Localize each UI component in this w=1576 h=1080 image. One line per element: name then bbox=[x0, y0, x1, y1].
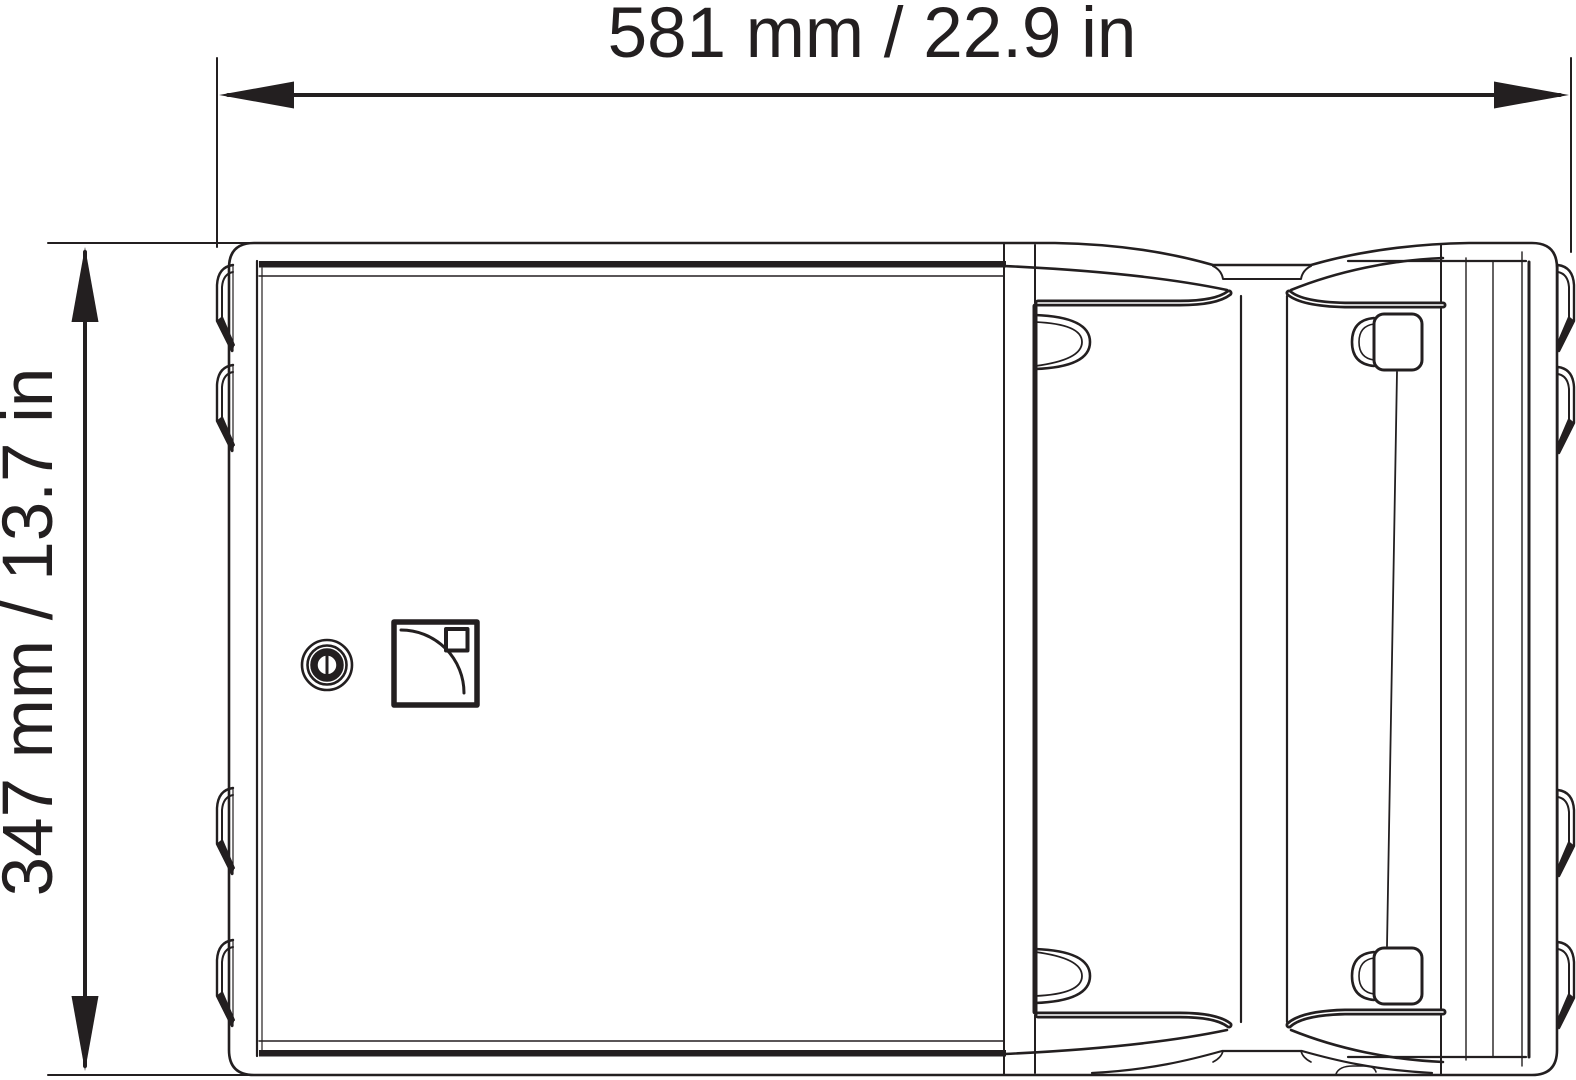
rigging-clips-left bbox=[217, 265, 234, 1026]
handle-grip-arc-inner bbox=[1359, 324, 1374, 360]
arrow-right-icon bbox=[1494, 82, 1569, 109]
right-panel-top-lip bbox=[1289, 293, 1443, 305]
front-panel-top-band bbox=[259, 261, 1006, 268]
back-panel-left bbox=[1035, 245, 1241, 1073]
width-dimension: 581 mm / 22.9 in bbox=[217, 0, 1571, 252]
screw-knob bbox=[302, 640, 352, 690]
handle-grip-icon bbox=[1374, 314, 1422, 370]
handle-grip-icon bbox=[1374, 948, 1422, 1004]
arrow-down-icon bbox=[72, 996, 99, 1071]
back-edge-slant-line bbox=[1387, 372, 1397, 946]
rigging-clip-icon bbox=[1557, 942, 1574, 1028]
rigging-clip-icon bbox=[217, 265, 234, 351]
top-right-converge-curve bbox=[1291, 258, 1443, 290]
top-channel-floor bbox=[1213, 266, 1311, 279]
bottom-channel-jogs bbox=[1213, 1051, 1311, 1062]
enclosure-outer-edge bbox=[229, 243, 1557, 1075]
technical-drawing-speaker-top-view: 581 mm / 22.9 in 347 mm / 13.7 in bbox=[0, 0, 1576, 1080]
rigging-clip-icon bbox=[217, 788, 234, 874]
handle-cutout-inner bbox=[1035, 322, 1082, 366]
enclosure-outline bbox=[229, 243, 1557, 1075]
front-panel-bottom-band bbox=[259, 1050, 1006, 1057]
back-panel-right bbox=[1287, 293, 1443, 1025]
brand-logo bbox=[394, 622, 477, 705]
rear-foot bbox=[1336, 1066, 1376, 1074]
arrow-up-icon bbox=[72, 247, 99, 322]
rigging-clip-icon bbox=[217, 365, 234, 451]
rigging-clip-icon bbox=[217, 940, 234, 1026]
handle-cutout-inner bbox=[1035, 952, 1082, 996]
bottom-left-converge-curve bbox=[1004, 1030, 1227, 1054]
logo-quarter-arc bbox=[401, 630, 464, 693]
height-dimension-label: 347 mm / 13.7 in bbox=[0, 368, 68, 897]
handle-grip-arc-inner bbox=[1359, 958, 1374, 994]
rigging-clip-icon bbox=[1557, 367, 1574, 453]
rigging-clips-right bbox=[1557, 265, 1574, 1028]
arrow-left-icon bbox=[219, 82, 294, 109]
logo-small-square bbox=[446, 629, 468, 651]
right-panel-bottom-lip bbox=[1289, 1012, 1443, 1025]
rigging-clip-icon bbox=[1557, 265, 1574, 351]
width-dimension-label: 581 mm / 22.9 in bbox=[608, 0, 1137, 73]
top-left-converge-curve bbox=[1004, 266, 1227, 290]
height-dimension: 347 mm / 13.7 in bbox=[0, 243, 276, 1075]
front-panel bbox=[257, 244, 1006, 1074]
rigging-clip-icon bbox=[1557, 790, 1574, 876]
